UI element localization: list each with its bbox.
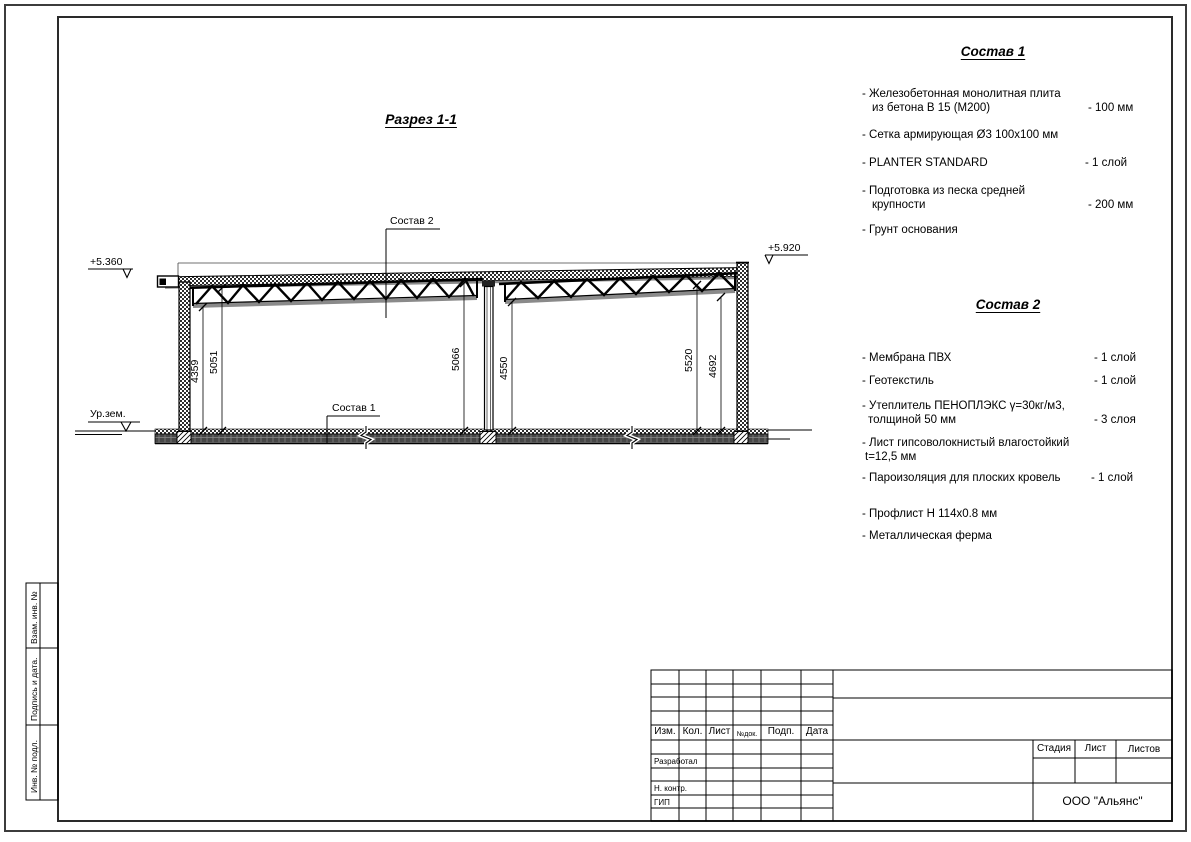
margin-box-podpis: Подпись и дата. [29, 658, 39, 722]
elevation-right-label: +5.920 [768, 242, 800, 254]
list-item: - Подготовка из песка средней [862, 185, 1025, 198]
list-item: - Утеплитель ПЕНОПЛЭКС γ=30кг/м3, [862, 400, 1065, 413]
titleblock-col-ndok: №док. [733, 729, 761, 741]
elevation-left-label: +5.360 [90, 256, 122, 268]
titleblock-col-izm: Изм. [651, 726, 679, 738]
list-item-value: - 1 слой [1094, 375, 1136, 388]
dim-5066: 5066 [450, 348, 462, 371]
dim-4692: 4692 [707, 355, 719, 378]
list-item: - Геотекстиль [862, 375, 934, 388]
list-item: - Сетка армирующая Ø3 100х100 мм [862, 129, 1058, 142]
titleblock-listov: Листов [1116, 744, 1172, 756]
list-item: из бетона В 15 (М200) [872, 102, 990, 115]
list-item-value: - 200 мм [1088, 199, 1133, 212]
titleblock-row-gip: ГИП [654, 798, 670, 808]
list-item: - Пароизоляция для плоских кровель [862, 472, 1061, 485]
callout-sostav2: Состав 2 [390, 215, 434, 227]
titleblock-col-podp: Подп. [761, 726, 801, 738]
dim-4359: 4359 [189, 360, 201, 383]
list-item-value: - 1 слой [1091, 472, 1133, 485]
list-item: - Лист гипсоволокнистый влагостойкий [862, 437, 1069, 450]
list-item: - Железобетонная монолитная плита [862, 88, 1061, 101]
callout-sostav1: Состав 1 [332, 402, 376, 414]
list-item-value: - 1 слой [1094, 352, 1136, 365]
floor-slab [155, 429, 768, 444]
ground-level-label: Ур.зем. [90, 408, 126, 420]
list-item: - Мембрана ПВХ [862, 352, 951, 365]
drawing-sheet: Разрез 1-1 +5.360 +5.920 Ур.зем. Состав … [0, 0, 1191, 842]
list-item: - Металлическая ферма [862, 530, 992, 543]
sostav2-title: Состав 2 [958, 298, 1058, 311]
titleblock-row-nkontr: Н. контр. [654, 784, 687, 794]
dim-5051: 5051 [208, 351, 220, 374]
list-item: крупности [872, 199, 925, 212]
section-linework [0, 0, 1191, 842]
titleblock-stadia: Стадия [1033, 743, 1075, 755]
list-item-value: - 3 слоя [1094, 414, 1136, 427]
titleblock-company: ООО "Альянс" [1033, 794, 1172, 808]
titleblock-col-kol: Кол. [679, 726, 706, 738]
sostav1-title: Состав 1 [943, 45, 1043, 58]
list-item: - Грунт основания [862, 224, 958, 237]
dim-4550: 4550 [498, 357, 510, 380]
dim-5520: 5520 [683, 349, 695, 372]
list-item-value: - 1 слой [1085, 157, 1127, 170]
margin-box-inv: Инв. № подл. [29, 740, 39, 793]
section-view [75, 229, 812, 449]
wall-left [179, 282, 190, 431]
wall-right [737, 263, 748, 431]
titleblock-row-razrabotal: Разработал [654, 757, 698, 767]
section-title: Разрез 1-1 [371, 113, 471, 126]
titleblock-list: Лист [1075, 743, 1116, 755]
titleblock-col-data: Дата [801, 726, 833, 738]
column-middle [482, 281, 495, 431]
list-item-value: - 100 мм [1088, 102, 1133, 115]
titleblock-col-list: Лист [706, 726, 733, 738]
list-item: - Профлист Н 114х0.8 мм [862, 508, 997, 521]
list-item: толщиной 50 мм [868, 414, 956, 427]
list-item: - PLANTER STANDARD [862, 157, 988, 170]
list-item: t=12,5 мм [865, 451, 916, 464]
margin-box-vzam: Взам. инв. № [29, 591, 39, 644]
